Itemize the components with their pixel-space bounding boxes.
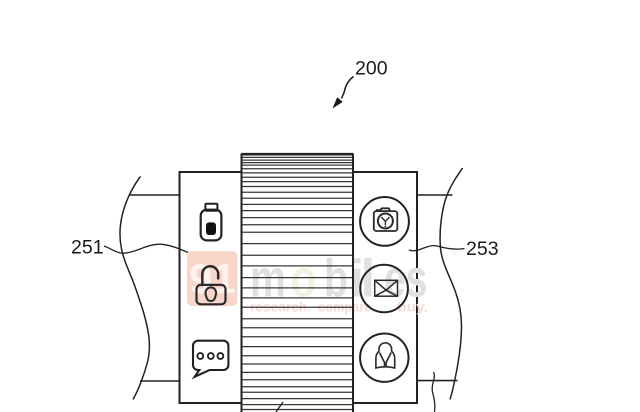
- svg-text:253: 253: [466, 238, 499, 260]
- svg-text:251: 251: [71, 237, 104, 259]
- svg-text:buy.: buy.: [397, 300, 428, 315]
- svg-text:200: 200: [355, 58, 388, 80]
